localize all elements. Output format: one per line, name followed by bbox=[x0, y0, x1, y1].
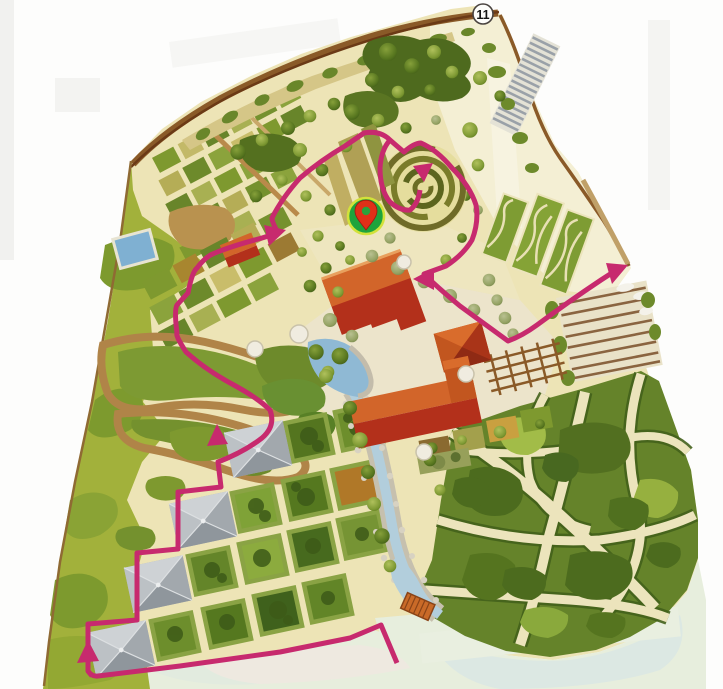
svg-text:11: 11 bbox=[476, 8, 489, 22]
